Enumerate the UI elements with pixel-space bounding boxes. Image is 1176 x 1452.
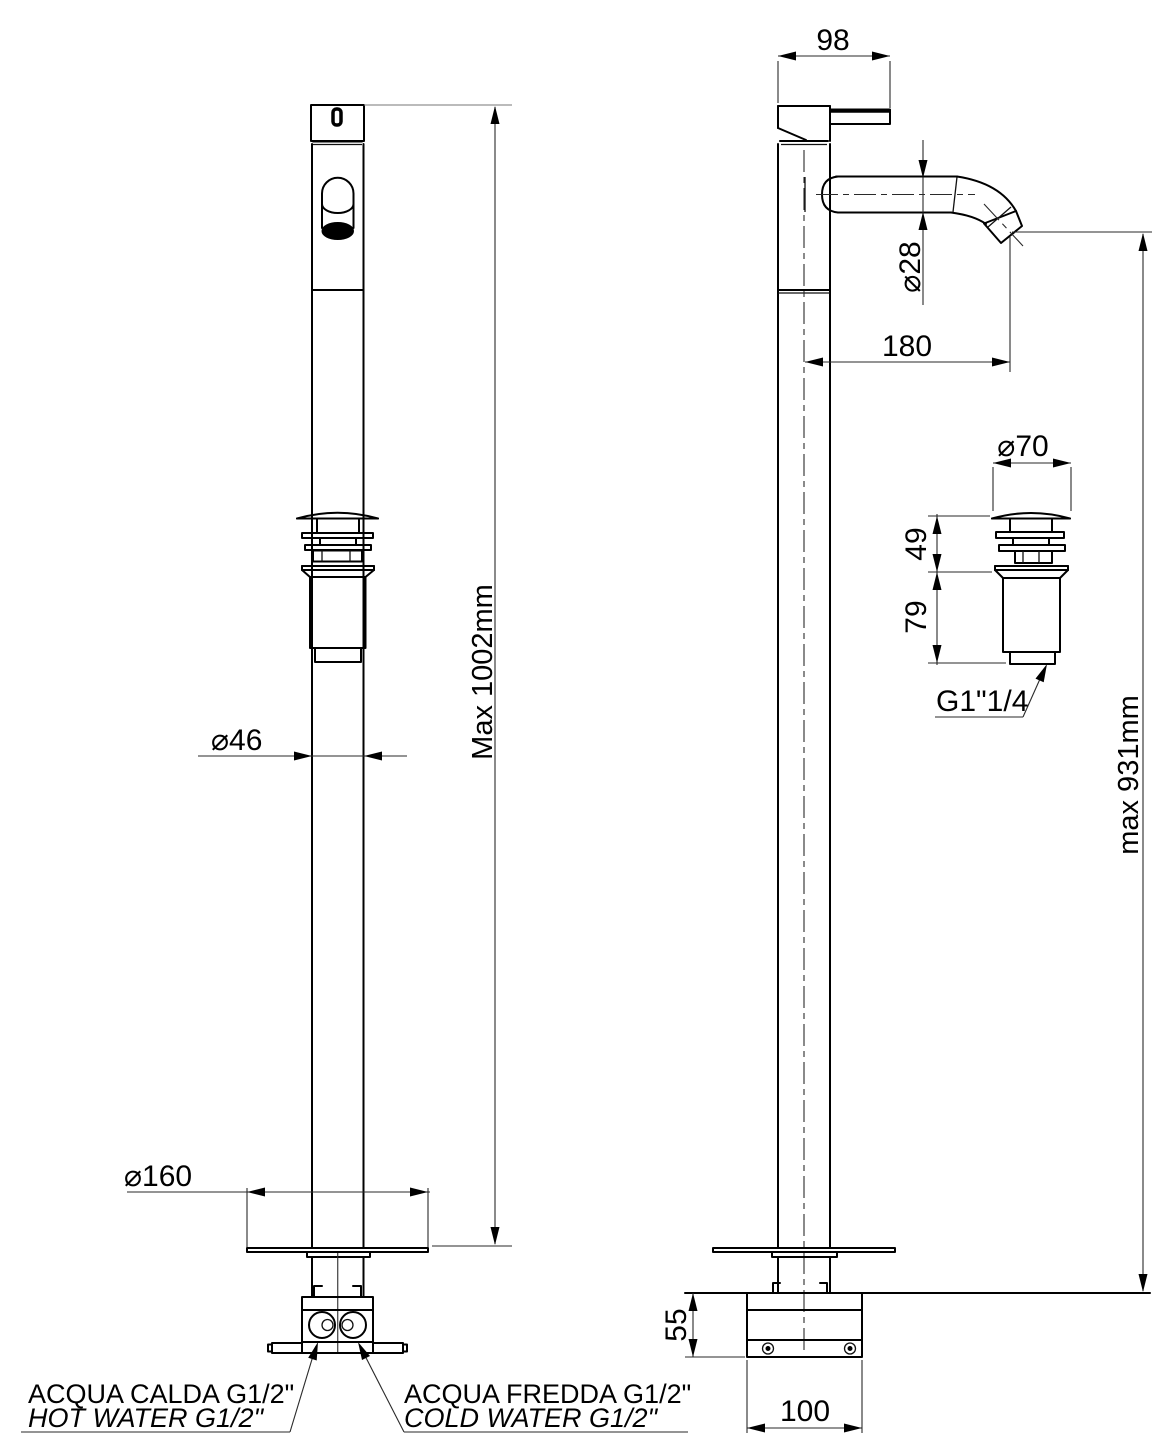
dim-base-width: 100 bbox=[780, 1395, 830, 1428]
front-spout-outlet bbox=[322, 223, 354, 240]
front-cap-slot bbox=[333, 109, 341, 125]
dim-drain-thread: G1"1/4 bbox=[936, 685, 1028, 718]
dimension-lines bbox=[21, 56, 1152, 1433]
side-spout-bend bbox=[957, 177, 1016, 212]
cold-water-label-en: COLD WATER G1/2" bbox=[404, 1403, 659, 1433]
side-view-base bbox=[685, 1248, 1150, 1357]
technical-drawing: Max 1002mm ⌀46 ⌀160 98 ⌀28 180 ⌀70 49 79… bbox=[0, 0, 1176, 1452]
arrowheads bbox=[247, 52, 1148, 1433]
dim-drain-top-height: 49 bbox=[900, 527, 933, 560]
dim-spout-reach: 180 bbox=[882, 330, 932, 363]
dim-spout-diameter: ⌀28 bbox=[894, 241, 927, 292]
hot-water-label-en: HOT WATER G1/2" bbox=[28, 1403, 265, 1433]
connection-labels: ACQUA CALDA G1/2" HOT WATER G1/2" ACQUA … bbox=[28, 1379, 691, 1433]
drain-thread-end bbox=[1010, 652, 1055, 664]
dim-base-height: 55 bbox=[660, 1308, 693, 1341]
dim-column-diameter: ⌀46 bbox=[211, 724, 262, 757]
drain-body bbox=[1003, 578, 1060, 652]
front-view-base bbox=[247, 1248, 428, 1353]
dim-handle-length: 98 bbox=[816, 24, 849, 57]
side-view-drain bbox=[992, 513, 1070, 664]
front-view bbox=[311, 105, 364, 1248]
front-view-drain bbox=[297, 513, 378, 662]
dim-spout-height: max 931mm bbox=[1113, 695, 1145, 855]
dim-drain-body-height: 79 bbox=[900, 600, 933, 633]
front-spout bbox=[322, 178, 354, 228]
dimension-text: Max 1002mm ⌀46 ⌀160 98 ⌀28 180 ⌀70 49 79… bbox=[124, 24, 1145, 1428]
drawing-svg: Max 1002mm ⌀46 ⌀160 98 ⌀28 180 ⌀70 49 79… bbox=[0, 0, 1176, 1452]
dim-overall-height: Max 1002mm bbox=[467, 584, 499, 760]
dim-drain-cap-diameter: ⌀70 bbox=[997, 430, 1048, 463]
dim-base-plate-diameter: ⌀160 bbox=[124, 1160, 192, 1193]
